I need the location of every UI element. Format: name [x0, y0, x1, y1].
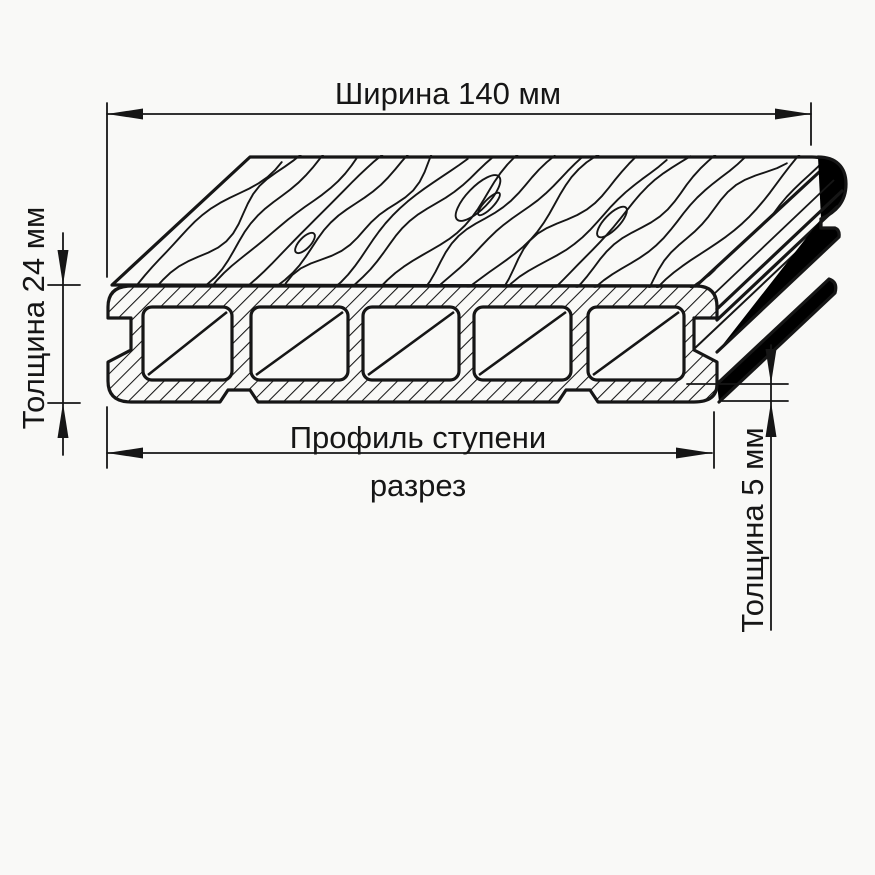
hollow-chambers	[143, 307, 684, 380]
arrowhead-right	[676, 448, 712, 459]
hollow-chamber	[474, 307, 571, 380]
technical-drawing: Ширина 140 мм Толщина 24 мм Профиль ступ…	[0, 0, 875, 875]
arrowhead-left	[107, 109, 143, 120]
board-cross-section	[108, 286, 717, 402]
arrowhead-up	[58, 403, 69, 438]
hollow-chamber	[251, 307, 348, 380]
dimension-thickness-24: Толщина 24 мм	[16, 207, 80, 455]
arrowhead-down	[58, 250, 69, 285]
diagram-canvas: Ширина 140 мм Толщина 24 мм Профиль ступ…	[0, 0, 875, 875]
arrowhead-left	[107, 448, 143, 459]
dimension-profile-caption: Профиль ступени разрез	[107, 407, 714, 503]
arrowhead-right	[775, 109, 811, 120]
width-dimension-label: Ширина 140 мм	[335, 76, 561, 111]
profile-caption-line2: разрез	[370, 468, 466, 503]
hollow-chamber	[588, 307, 684, 380]
wall-thickness-dimension-label: Толщина 5 мм	[735, 427, 770, 632]
thickness-dimension-label: Толщина 24 мм	[16, 207, 51, 430]
arrowhead-down	[766, 349, 777, 384]
hollow-chamber	[143, 307, 232, 380]
profile-caption-line1: Профиль ступени	[290, 420, 546, 455]
hollow-chamber	[363, 307, 459, 380]
